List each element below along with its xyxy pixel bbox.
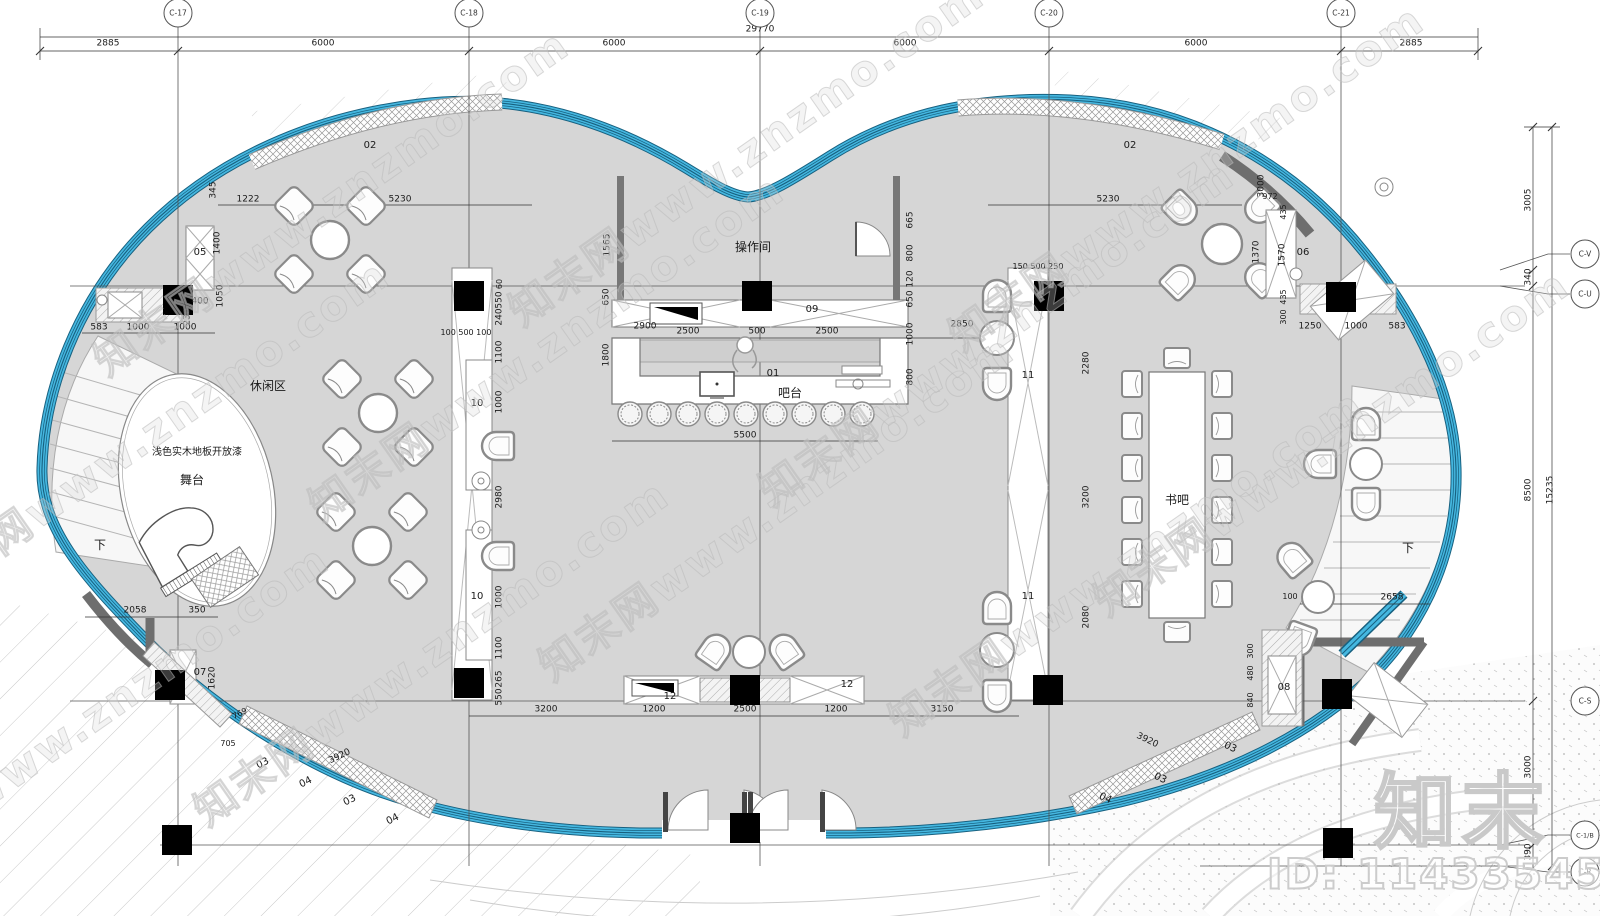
floor-plan-drawing: 2977028856000600060006000288530053408500… bbox=[0, 0, 1600, 916]
bar-stools bbox=[618, 402, 874, 426]
floor-plan-canvas bbox=[0, 0, 1600, 916]
